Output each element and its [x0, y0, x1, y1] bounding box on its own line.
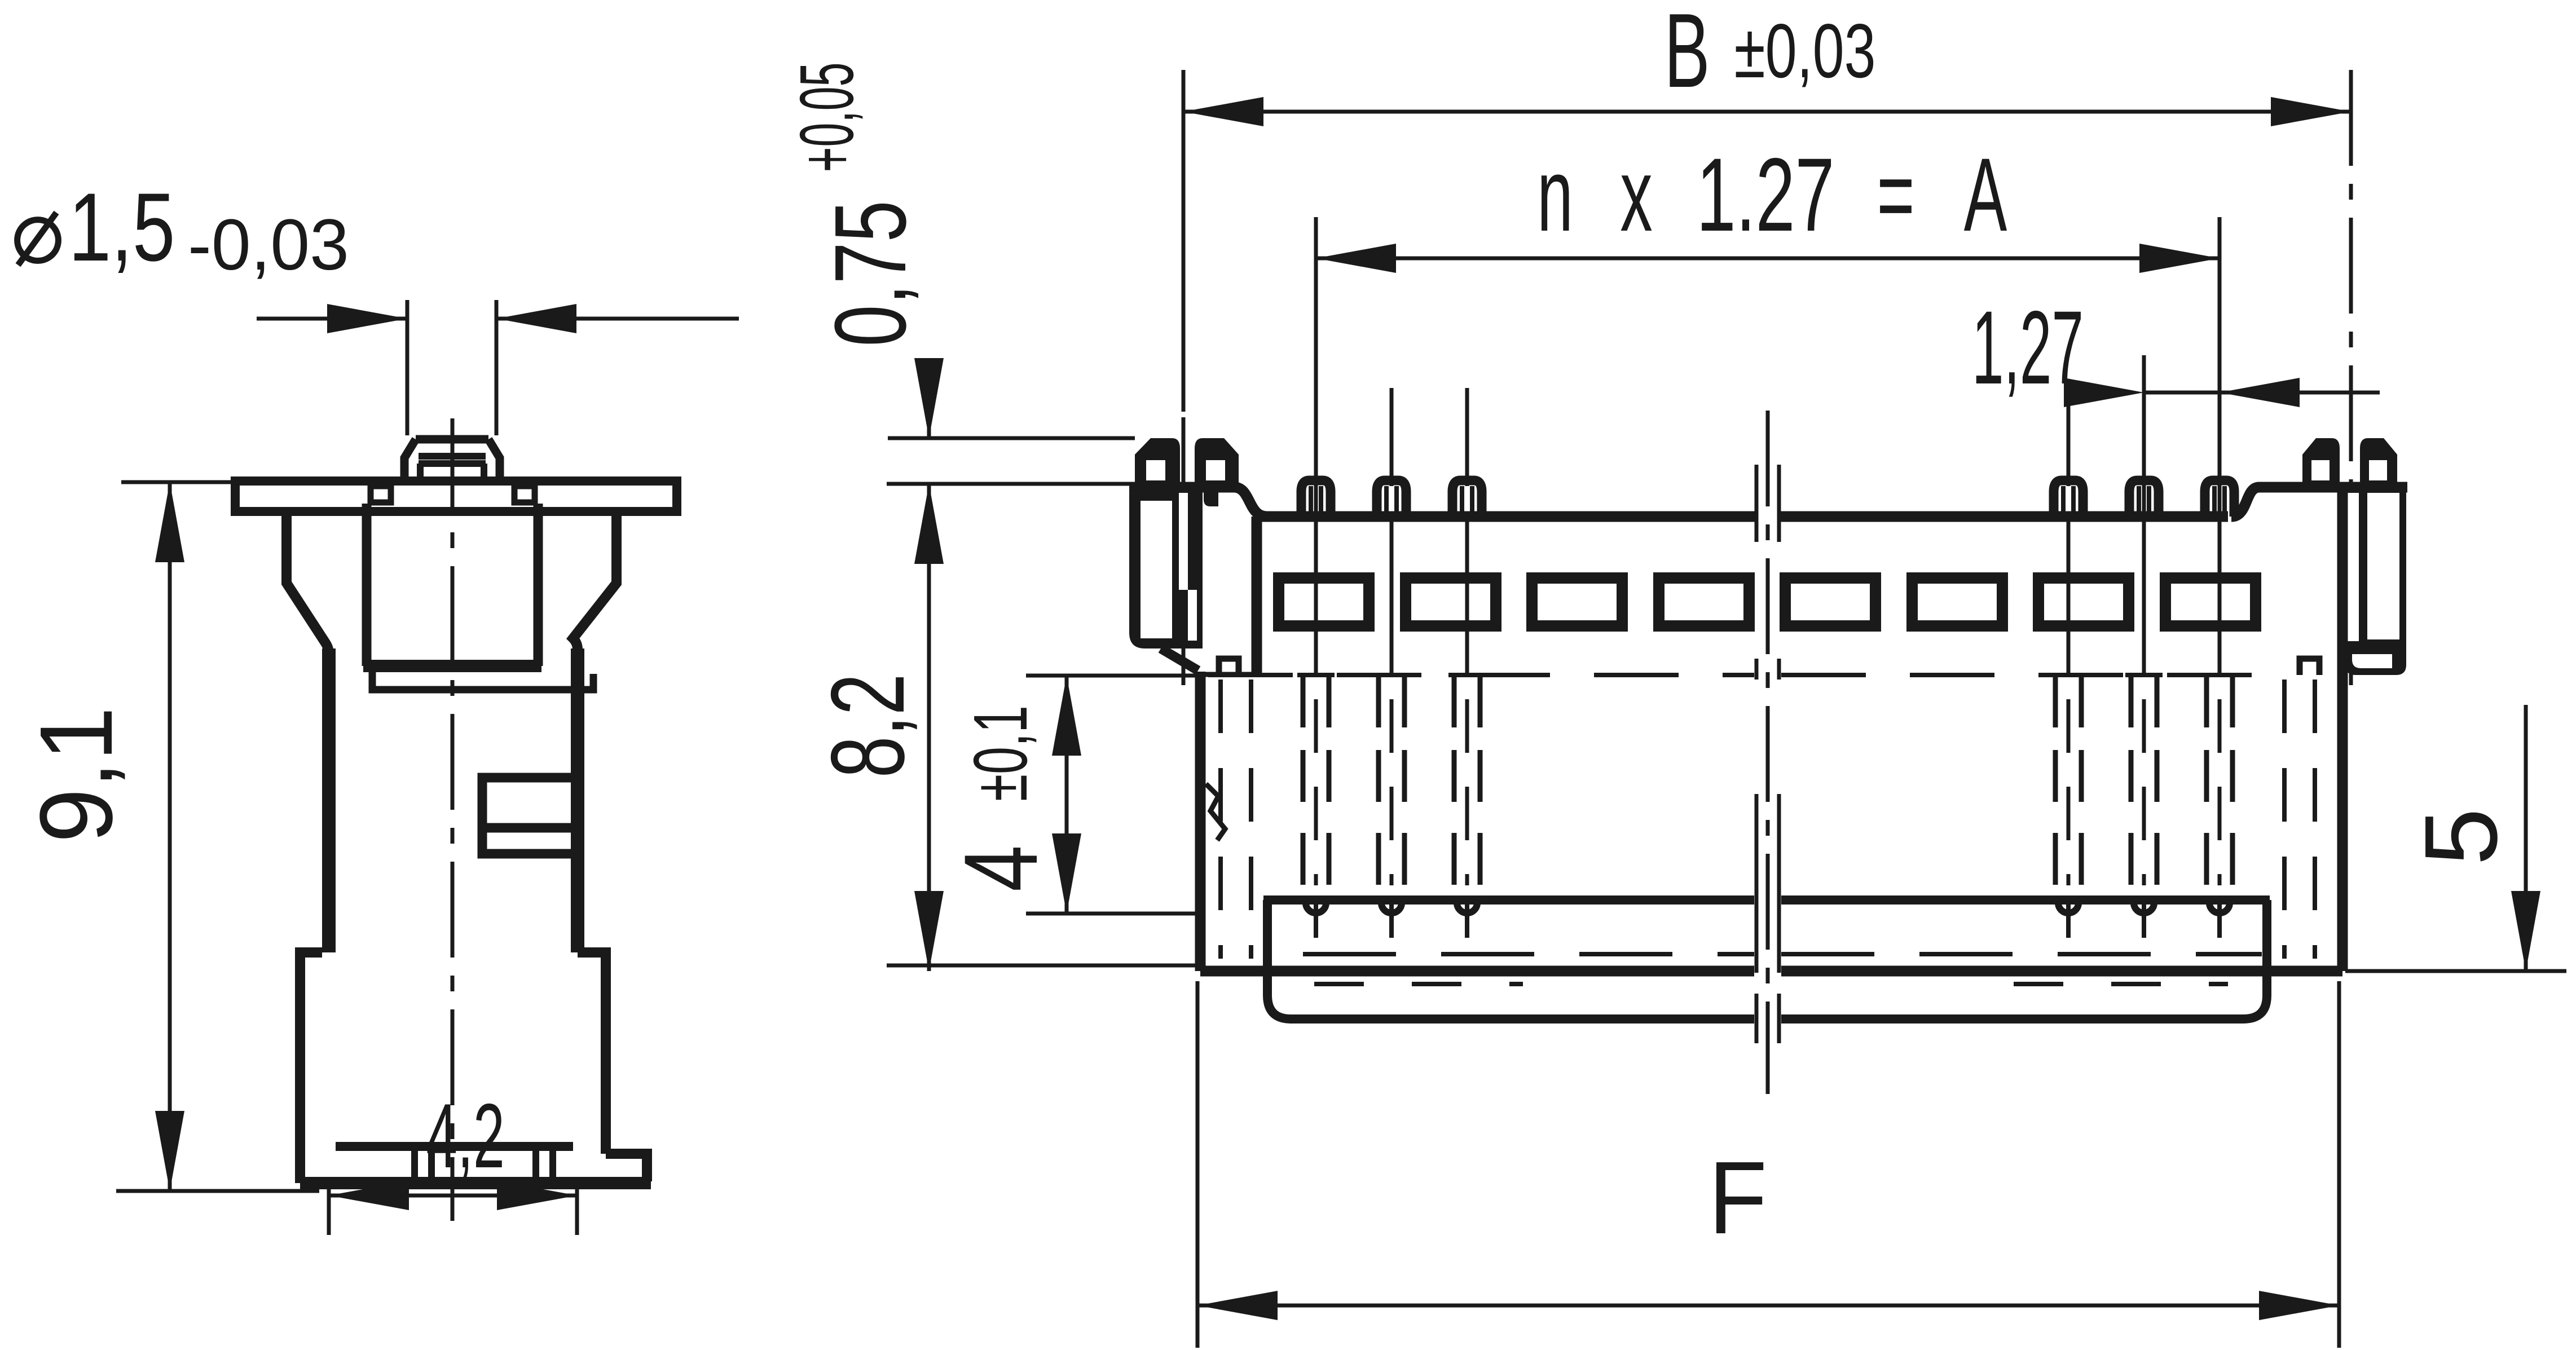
svg-text:1.27: 1.27 — [1697, 136, 1835, 253]
svg-text:1,27: 1,27 — [1972, 289, 2084, 406]
svg-text:F: F — [1708, 1140, 1767, 1255]
svg-text:±0,03: ±0,03 — [1734, 8, 1875, 94]
svg-text:±0,1: ±0,1 — [958, 705, 1043, 801]
svg-text:A: A — [1964, 136, 2007, 253]
svg-text:4,2: 4,2 — [426, 1084, 505, 1186]
svg-text:+0,05: +0,05 — [785, 63, 870, 173]
svg-text:B: B — [1664, 0, 1710, 109]
svg-text:0,75: 0,75 — [813, 200, 927, 346]
svg-text:=: = — [1877, 136, 1915, 253]
svg-text:8,2: 8,2 — [810, 673, 927, 778]
svg-text:1,5: 1,5 — [69, 173, 175, 281]
svg-text:n: n — [1537, 136, 1573, 253]
svg-text:4: 4 — [943, 845, 1059, 892]
svg-text:9,1: 9,1 — [18, 707, 134, 843]
svg-text:-0,03: -0,03 — [188, 204, 349, 285]
svg-text:5: 5 — [2403, 808, 2518, 866]
svg-text:x: x — [1620, 136, 1652, 253]
